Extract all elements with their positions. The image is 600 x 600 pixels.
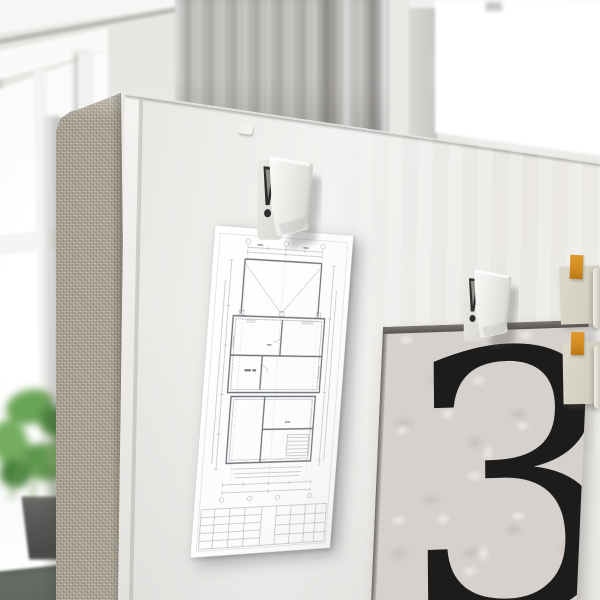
- orange-tape: [571, 332, 584, 355]
- picture-clip-left: [254, 152, 322, 250]
- poster-numeral: 3: [398, 320, 589, 600]
- curtain-fold-highlight: [343, 0, 351, 142]
- mounting-tab: [237, 123, 253, 135]
- picture-clip-right: [461, 266, 519, 350]
- floor-plan-drawing: [190, 225, 354, 558]
- curtain-fold-shadow: [369, 0, 380, 142]
- scene-photo: 3: [0, 0, 600, 600]
- curled-note-edge: [594, 345, 600, 409]
- floor-plan-sheet: [190, 225, 354, 558]
- curled-note-edge: [593, 268, 600, 328]
- curtain-fold-shadow: [322, 0, 337, 142]
- clip-graphic: [254, 152, 322, 250]
- curtain-fold-highlight: [382, 0, 389, 142]
- number-poster: 3: [370, 320, 589, 600]
- clip-graphic: [461, 266, 519, 350]
- orange-tape: [570, 255, 584, 279]
